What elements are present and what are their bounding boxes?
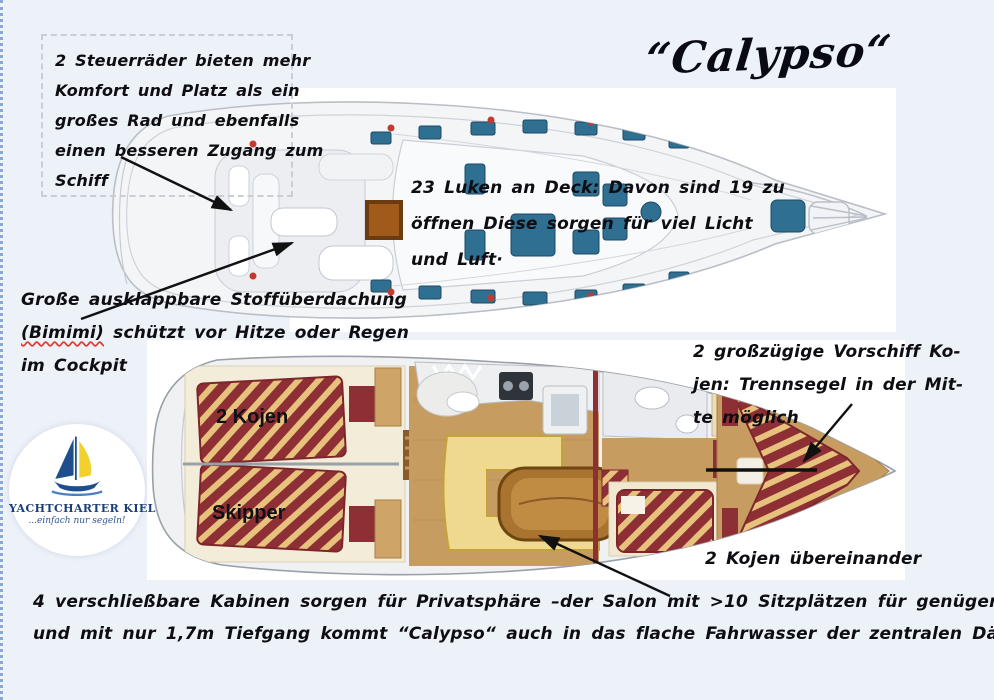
footer-line: 4 verschließbare Kabinen sorgen für Priv… bbox=[33, 586, 983, 618]
hatches-note-line: 23 Luken an Deck: Davon sind 19 zu bbox=[411, 170, 785, 206]
bimini-note-line: im Cockpit bbox=[21, 350, 409, 383]
cockpit-table bbox=[271, 208, 337, 236]
companionway bbox=[365, 200, 403, 240]
logo-tagline: ...einfach nur segeln! bbox=[9, 516, 145, 526]
cabin-label-skipper: Skipper bbox=[212, 502, 285, 525]
steering-note-line: Schiff bbox=[55, 166, 291, 196]
bimini-note-line: (Bimimi) schützt vor Hitze oder Regen bbox=[21, 317, 409, 350]
bimini-note-rest: schützt vor Hitze oder Regen bbox=[104, 323, 409, 343]
logo-name: YACHTCHARTER KIEL bbox=[9, 502, 145, 515]
foreship-note: 2 großzügige Vorschiff Ko- jen: Trennseg… bbox=[693, 336, 963, 435]
foreship-note-line: 2 großzügige Vorschiff Ko- bbox=[693, 336, 963, 369]
foreship-note-line: te möglich bbox=[693, 402, 963, 435]
footer-line: und mit nur 1,7m Tiefgang kommt “Calypso… bbox=[33, 618, 983, 650]
bimini-note: Große ausklappbare Stoffüberdachung (Bim… bbox=[21, 284, 409, 383]
head-sink bbox=[635, 387, 669, 409]
aft-cabins bbox=[183, 366, 405, 562]
steering-note-line: 2 Steuerräder bieten mehr bbox=[55, 46, 291, 76]
foreship-note-line: jen: Trennsegel in der Mit- bbox=[693, 369, 963, 402]
hatches-note-line: und Luft· bbox=[411, 242, 785, 278]
yacht-title: “Calypso“ bbox=[641, 25, 920, 106]
steering-note-box: 2 Steuerräder bieten mehr Komfort und Pl… bbox=[41, 34, 293, 197]
starboard-cabin bbox=[602, 438, 729, 556]
yachtcharter-kiel-logo: YACHTCHARTER KIEL ...einfach nur segeln! bbox=[9, 424, 145, 556]
steering-wheel-starboard bbox=[229, 236, 249, 276]
cabin-label-2-kojen: 2 Kojen bbox=[216, 406, 288, 429]
steering-note-line: großes Rad und ebenfalls bbox=[55, 106, 291, 136]
hatches-note: 23 Luken an Deck: Davon sind 19 zu öffne… bbox=[411, 170, 785, 278]
yacht-brochure-page: 2 Steuerräder bieten mehr Komfort und Pl… bbox=[0, 0, 994, 700]
mast-line bbox=[593, 342, 598, 576]
steering-note-line: Komfort und Platz als ein bbox=[55, 76, 291, 106]
sailboat-icon bbox=[42, 432, 112, 496]
bunk-note: 2 Kojen übereinander bbox=[705, 549, 921, 569]
bimini-note-line: Große ausklappbare Stoffüberdachung bbox=[21, 284, 409, 317]
hatches-note-line: öffnen Diese sorgen für viel Licht bbox=[411, 206, 785, 242]
footer-paragraph: 4 verschließbare Kabinen sorgen für Priv… bbox=[33, 586, 983, 650]
misspelled-word: (Bimimi) bbox=[21, 323, 104, 343]
steering-note-line: einen besseren Zugang zum bbox=[55, 136, 291, 166]
